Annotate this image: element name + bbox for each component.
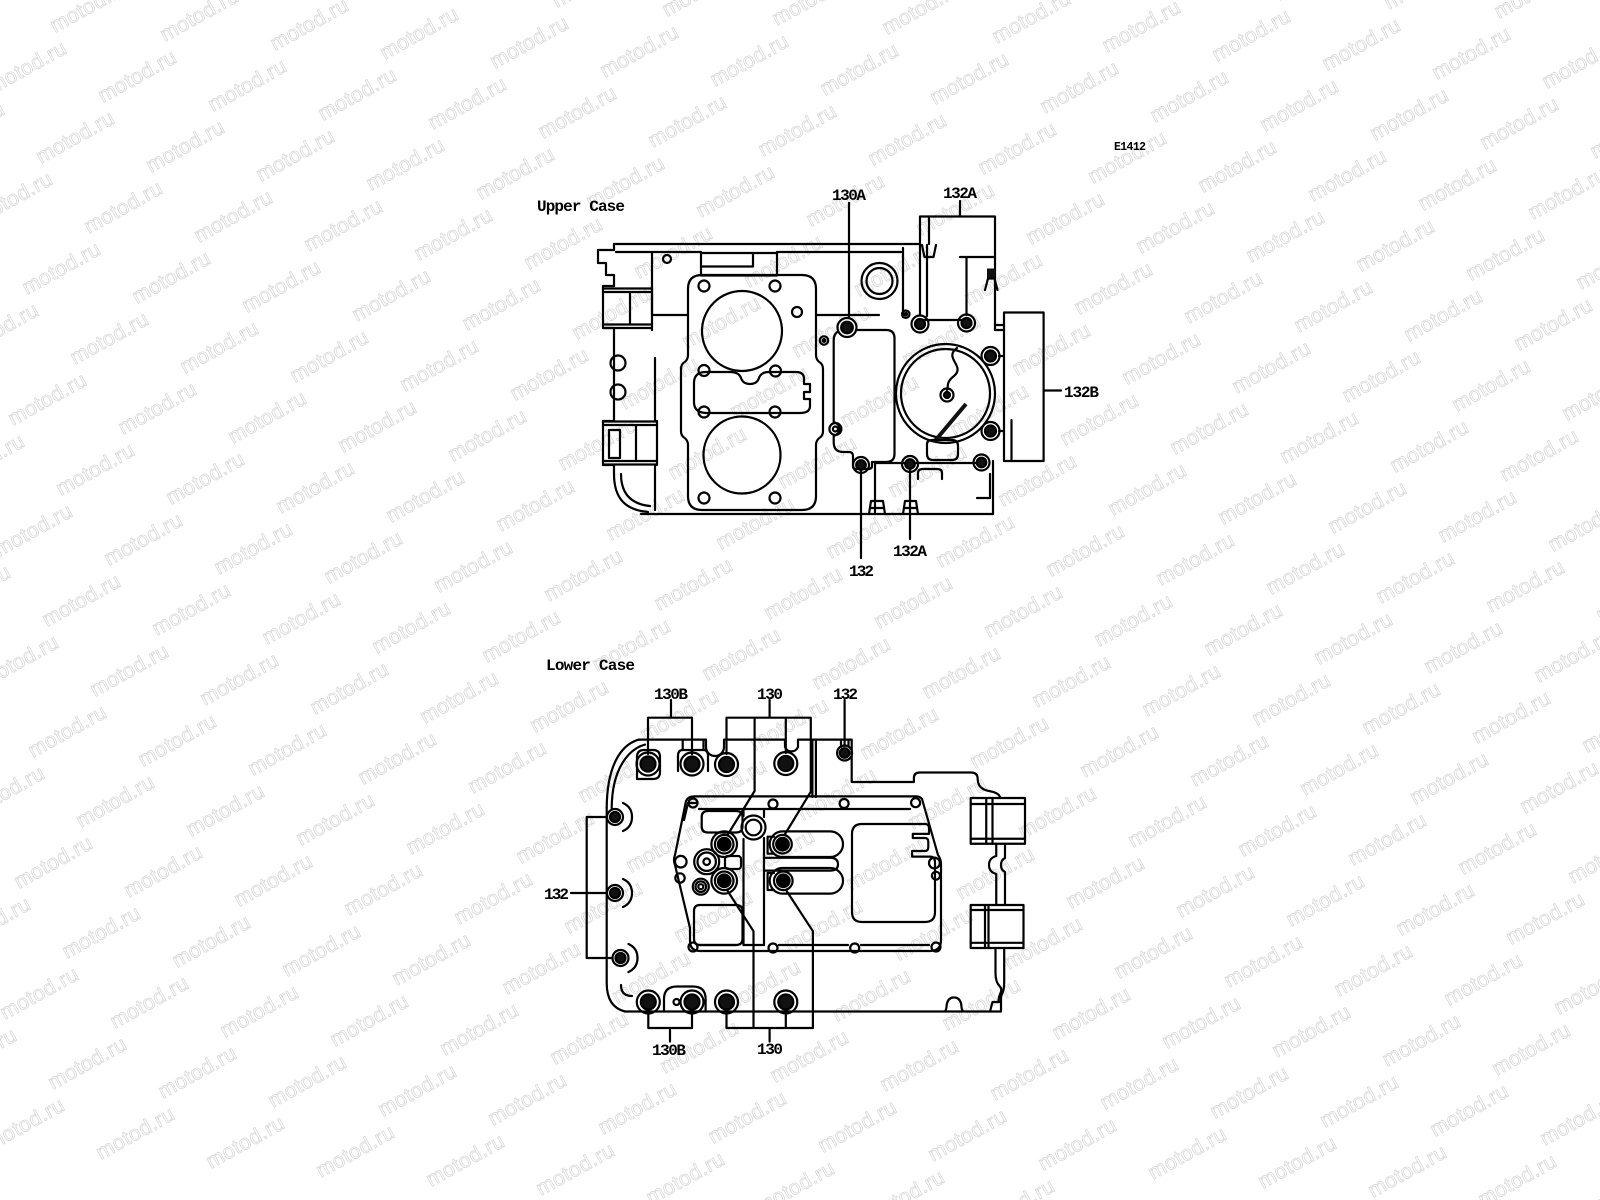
svg-text:motod.ru: motod.ru <box>1426 1080 1512 1142</box>
svg-text:motod.ru: motod.ru <box>306 658 392 720</box>
svg-text:motod.ru: motod.ru <box>994 450 1080 512</box>
svg-text:motod.ru: motod.ru <box>1352 215 1438 277</box>
svg-text:motod.ru: motod.ru <box>650 554 736 616</box>
svg-text:motod.ru: motod.ru <box>548 0 634 12</box>
svg-text:motod.ru: motod.ru <box>698 624 784 686</box>
svg-text:motod.ru: motod.ru <box>134 710 220 772</box>
svg-text:motod.ru: motod.ru <box>1228 337 1314 399</box>
svg-text:motod.ru: motod.ru <box>1220 931 1306 993</box>
svg-text:motod.ru: motod.ru <box>506 344 592 406</box>
svg-text:motod.ru: motod.ru <box>354 728 440 790</box>
svg-text:motod.ru: motod.ru <box>272 457 358 519</box>
svg-text:motod.ru: motod.ru <box>1488 1019 1574 1081</box>
svg-text:motod.ru: motod.ru <box>704 1087 790 1149</box>
svg-text:motod.ru: motod.ru <box>1454 818 1540 880</box>
svg-text:motod.ru: motod.ru <box>1366 84 1452 146</box>
svg-text:motod.ru: motod.ru <box>1028 651 1114 713</box>
svg-text:motod.ru: motod.ru <box>326 990 412 1052</box>
svg-text:motod.ru: motod.ru <box>1268 1001 1354 1063</box>
svg-text:motod.ru: motod.ru <box>1242 206 1328 268</box>
svg-text:motod.ru: motod.ru <box>1414 154 1500 216</box>
svg-text:motod.ru: motod.ru <box>924 1105 1010 1167</box>
svg-text:motod.ru: motod.ru <box>876 1035 962 1097</box>
svg-text:motod.ru: motod.ru <box>546 1008 632 1070</box>
svg-text:motod.ru: motod.ru <box>1550 958 1600 1020</box>
svg-text:motod.ru: motod.ru <box>388 929 474 991</box>
svg-text:motod.ru: motod.ru <box>1510 294 1596 356</box>
svg-text:motod.ru: motod.ru <box>1146 66 1232 128</box>
svg-text:motod.ru: motod.ru <box>760 563 846 625</box>
svg-text:motod.ru: motod.ru <box>1144 1123 1230 1185</box>
svg-text:motod.ru: motod.ru <box>1420 617 1506 679</box>
svg-text:132: 132 <box>833 686 858 704</box>
svg-text:motod.ru: motod.ru <box>58 902 144 964</box>
svg-text:motod.ru: motod.ru <box>1076 721 1162 783</box>
svg-text:motod.ru: motod.ru <box>1180 267 1266 329</box>
svg-text:motod.ru: motod.ru <box>278 920 364 982</box>
svg-text:motod.ru: motod.ru <box>472 143 558 205</box>
svg-text:Upper Case: Upper Case <box>537 198 625 216</box>
svg-text:motod.ru: motod.ru <box>862 1166 948 1200</box>
svg-text:motod.ru: motod.ru <box>382 466 468 528</box>
svg-text:motod.ru: motod.ru <box>168 911 254 973</box>
svg-text:motod.ru: motod.ru <box>204 55 290 117</box>
svg-text:motod.ru: motod.ru <box>0 299 43 361</box>
svg-text:motod.ru: motod.ru <box>864 109 950 171</box>
svg-text:motod.ru: motod.ru <box>1282 870 1368 932</box>
svg-text:motod.ru: motod.ru <box>1380 0 1466 14</box>
svg-text:motod.ru: motod.ru <box>1036 57 1122 119</box>
svg-text:motod.ru: motod.ru <box>430 536 516 598</box>
svg-text:motod.ru: motod.ru <box>752 1157 838 1200</box>
svg-text:motod.ru: motod.ru <box>540 545 626 607</box>
svg-text:motod.ru: motod.ru <box>292 789 378 851</box>
svg-text:motod.ru: motod.ru <box>1400 285 1486 347</box>
svg-text:motod.ru: motod.ru <box>368 597 454 659</box>
svg-text:motod.ru: motod.ru <box>0 500 77 562</box>
svg-text:motod.ru: motod.ru <box>1254 1132 1340 1194</box>
svg-text:motod.ru: motod.ru <box>1558 364 1600 426</box>
svg-text:motod.ru: motod.ru <box>320 527 406 589</box>
svg-text:motod.ru: motod.ru <box>416 667 502 729</box>
svg-text:motod.ru: motod.ru <box>836 371 922 433</box>
svg-text:motod.ru: motod.ru <box>436 999 522 1061</box>
svg-text:motod.ru: motod.ru <box>1214 468 1300 530</box>
svg-text:motod.ru: motod.ru <box>402 798 488 860</box>
svg-text:motod.ru: motod.ru <box>300 195 386 257</box>
svg-text:motod.ru: motod.ru <box>120 841 206 903</box>
svg-text:motod.ru: motod.ru <box>988 0 1074 48</box>
svg-text:motod.ru: motod.ru <box>980 581 1066 643</box>
svg-text:motod.ru: motod.ru <box>162 448 248 510</box>
svg-text:motod.ru: motod.ru <box>340 859 426 921</box>
svg-text:motod.ru: motod.ru <box>244 719 330 781</box>
svg-text:motod.ru: motod.ru <box>210 518 296 580</box>
svg-text:motod.ru: motod.ru <box>972 1175 1058 1200</box>
svg-text:motod.ru: motod.ru <box>148 579 234 641</box>
svg-text:motod.ru: motod.ru <box>18 238 104 300</box>
svg-text:motod.ru: motod.ru <box>24 701 110 763</box>
svg-text:motod.ru: motod.ru <box>768 0 854 30</box>
svg-text:motod.ru: motod.ru <box>10 832 96 894</box>
svg-text:motod.ru: motod.ru <box>856 703 942 765</box>
svg-text:motod.ru: motod.ru <box>224 387 310 449</box>
svg-text:motod.ru: motod.ru <box>1530 626 1600 688</box>
svg-text:motod.ru: motod.ru <box>560 877 646 939</box>
svg-text:motod.ru: motod.ru <box>692 161 778 223</box>
svg-text:motod.ru: motod.ru <box>616 353 702 415</box>
svg-text:motod.ru: motod.ru <box>484 1069 570 1131</box>
svg-text:motod.ru: motod.ru <box>1256 75 1342 137</box>
svg-text:motod.ru: motod.ru <box>4 369 90 431</box>
svg-text:motod.ru: motod.ru <box>312 1121 398 1183</box>
svg-text:motod.ru: motod.ru <box>190 186 276 248</box>
svg-text:motod.ru: motod.ru <box>252 125 338 187</box>
svg-text:motod.ru: motod.ru <box>0 963 83 1025</box>
svg-text:motod.ru: motod.ru <box>1338 346 1424 408</box>
svg-text:motod.ru: motod.ru <box>1474 1150 1560 1200</box>
svg-text:motod.ru: motod.ru <box>1008 319 1094 381</box>
svg-text:motod.ru: motod.ru <box>1468 687 1554 749</box>
svg-text:motod.ru: motod.ru <box>1586 102 1600 164</box>
svg-text:motod.ru: motod.ru <box>176 317 262 379</box>
svg-text:motod.ru: motod.ru <box>0 168 57 230</box>
svg-text:motod.ru: motod.ru <box>1234 800 1320 862</box>
svg-text:motod.ru: motod.ru <box>532 1139 618 1200</box>
svg-text:motod.ru: motod.ru <box>0 1024 21 1086</box>
svg-text:motod.ru: motod.ru <box>422 1130 508 1192</box>
svg-text:motod.ru: motod.ru <box>658 0 744 21</box>
svg-text:motod.ru: motod.ru <box>918 642 1004 704</box>
svg-text:motod.ru: motod.ru <box>238 256 324 318</box>
svg-text:motod.ru: motod.ru <box>314 64 400 126</box>
svg-text:motod.ru: motod.ru <box>1262 538 1348 600</box>
svg-text:motod.ru: motod.ru <box>1208 5 1294 67</box>
svg-text:motod.ru: motod.ru <box>450 868 536 930</box>
svg-text:motod.ru: motod.ru <box>202 1112 288 1174</box>
svg-text:motod.ru: motod.ru <box>46 0 132 37</box>
svg-text:motod.ru: motod.ru <box>0 0 23 28</box>
svg-text:motod.ru: motod.ru <box>1476 93 1562 155</box>
svg-text:motod.ru: motod.ru <box>898 310 984 372</box>
svg-text:motod.ru: motod.ru <box>706 30 792 92</box>
svg-text:motod.ru: motod.ru <box>80 177 166 239</box>
svg-text:132: 132 <box>544 886 569 904</box>
svg-text:motod.ru: motod.ru <box>794 764 880 826</box>
svg-text:motod.ru: motod.ru <box>38 570 124 632</box>
svg-text:motod.ru: motod.ru <box>1564 827 1600 889</box>
svg-text:motod.ru: motod.ru <box>1166 398 1252 460</box>
svg-text:motod.ru: motod.ru <box>94 46 180 108</box>
svg-text:motod.ru: motod.ru <box>642 1148 728 1200</box>
svg-text:motod.ru: motod.ru <box>1330 940 1416 1002</box>
svg-text:motod.ru: motod.ru <box>44 1033 130 1095</box>
svg-text:motod.ru: motod.ru <box>444 405 530 467</box>
svg-text:motod.ru: motod.ru <box>1316 1071 1402 1133</box>
svg-text:motod.ru: motod.ru <box>1318 14 1404 76</box>
svg-text:motod.ru: motod.ru <box>1524 163 1600 225</box>
svg-text:motod.ru: motod.ru <box>644 91 730 153</box>
svg-text:motod.ru: motod.ru <box>932 511 1018 573</box>
svg-text:motod.ru: motod.ru <box>1186 730 1272 792</box>
svg-text:motod.ru: motod.ru <box>1200 599 1286 661</box>
svg-text:motod.ru: motod.ru <box>92 1103 178 1165</box>
svg-text:motod.ru: motod.ru <box>1104 459 1190 521</box>
svg-text:motod.ru: motod.ru <box>1428 23 1514 85</box>
svg-text:motod.ru: motod.ru <box>1578 696 1600 758</box>
svg-text:motod.ru: motod.ru <box>1358 678 1444 740</box>
svg-text:motod.ru: motod.ru <box>156 0 242 46</box>
svg-text:motod.ru: motod.ru <box>72 771 158 833</box>
svg-text:motod.ru: motod.ru <box>52 439 138 501</box>
svg-text:motod.ru: motod.ru <box>828 965 914 1027</box>
svg-text:motod.ru: motod.ru <box>1118 328 1204 390</box>
svg-text:motod.ru: motod.ru <box>1592 565 1600 627</box>
svg-text:132: 132 <box>849 563 874 581</box>
svg-text:motod.ru: motod.ru <box>106 972 192 1034</box>
svg-text:motod.ru: motod.ru <box>1290 276 1376 338</box>
svg-text:motod.ru: motod.ru <box>1090 590 1176 652</box>
svg-text:motod.ru: motod.ru <box>1502 888 1588 950</box>
svg-text:motod.ru: motod.ru <box>1406 748 1492 810</box>
svg-text:motod.ru: motod.ru <box>1132 197 1218 259</box>
svg-text:motod.ru: motod.ru <box>410 204 496 266</box>
svg-text:motod.ru: motod.ru <box>0 561 15 623</box>
svg-text:motod.ru: motod.ru <box>154 1042 240 1104</box>
svg-text:130: 130 <box>757 1041 783 1059</box>
svg-text:motod.ru: motod.ru <box>1378 1010 1464 1072</box>
svg-text:motod.ru: motod.ru <box>1276 407 1362 469</box>
svg-text:motod.ru: motod.ru <box>974 118 1060 180</box>
svg-text:motod.ru: motod.ru <box>678 292 764 354</box>
svg-text:motod.ru: motod.ru <box>0 893 35 955</box>
svg-text:motod.ru: motod.ru <box>1448 355 1534 417</box>
svg-text:motod.ru: motod.ru <box>1392 879 1478 941</box>
svg-text:motod.ru: motod.ru <box>66 308 152 370</box>
svg-text:motod.ru: motod.ru <box>1048 983 1134 1045</box>
svg-text:motod.ru: motod.ru <box>334 396 420 458</box>
svg-text:130B: 130B <box>652 1042 686 1060</box>
svg-text:motod.ru: motod.ru <box>0 762 49 824</box>
svg-text:motod.ru: motod.ru <box>1084 127 1170 189</box>
svg-text:motod.ru: motod.ru <box>1538 32 1600 94</box>
svg-text:motod.ru: motod.ru <box>1482 556 1568 618</box>
svg-text:motod.ru: motod.ru <box>816 39 902 101</box>
svg-text:motod.ru: motod.ru <box>1544 495 1600 557</box>
svg-text:motod.ru: motod.ru <box>0 37 71 99</box>
svg-text:motod.ru: motod.ru <box>596 21 682 83</box>
svg-text:motod.ru: motod.ru <box>664 423 750 485</box>
svg-text:motod.ru: motod.ru <box>0 692 1 754</box>
svg-text:motod.ru: motod.ru <box>1462 224 1548 286</box>
svg-text:motod.ru: motod.ru <box>486 12 572 74</box>
svg-text:motod.ru: motod.ru <box>258 588 344 650</box>
svg-text:motod.ru: motod.ru <box>1042 520 1128 582</box>
svg-text:motod.ru: motod.ru <box>1496 425 1582 487</box>
svg-text:motod.ru: motod.ru <box>0 430 29 492</box>
svg-text:motod.ru: motod.ru <box>870 572 956 634</box>
svg-text:motod.ru: motod.ru <box>32 107 118 169</box>
svg-text:motod.ru: motod.ru <box>114 378 200 440</box>
svg-text:motod.ru: motod.ru <box>0 98 9 160</box>
svg-text:motod.ru: motod.ru <box>1158 992 1244 1054</box>
svg-text:motod.ru: motod.ru <box>1572 233 1600 295</box>
svg-text:motod.ru: motod.ru <box>1206 1062 1292 1124</box>
svg-text:motod.ru: motod.ru <box>348 265 434 327</box>
svg-text:motod.ru: motod.ru <box>1372 547 1458 609</box>
svg-text:motod.ru: motod.ru <box>1062 852 1148 914</box>
svg-text:motod.ru: motod.ru <box>878 0 964 39</box>
svg-text:motod.ru: motod.ru <box>966 712 1052 774</box>
svg-text:motod.ru: motod.ru <box>230 850 316 912</box>
svg-text:Lower Case: Lower Case <box>546 657 635 675</box>
svg-text:motod.ru: motod.ru <box>926 48 1012 110</box>
svg-text:motod.ru: motod.ru <box>1070 258 1156 320</box>
svg-text:motod.ru: motod.ru <box>594 1078 680 1140</box>
svg-text:motod.ru: motod.ru <box>1386 416 1472 478</box>
svg-text:motod.ru: motod.ru <box>1296 739 1382 801</box>
svg-text:motod.ru: motod.ru <box>1172 861 1258 923</box>
svg-text:motod.ru: motod.ru <box>890 904 976 966</box>
svg-text:motod.ru: motod.ru <box>266 0 352 55</box>
svg-text:motod.ru: motod.ru <box>554 414 640 476</box>
svg-text:motod.ru: motod.ru <box>1248 669 1334 731</box>
svg-text:motod.ru: motod.ru <box>1138 660 1224 722</box>
svg-text:motod.ru: motod.ru <box>182 780 268 842</box>
svg-text:motod.ru: motod.ru <box>1022 188 1108 250</box>
svg-text:motod.ru: motod.ru <box>1536 1089 1600 1151</box>
svg-text:motod.ru: motod.ru <box>1034 1114 1120 1176</box>
svg-text:motod.ru: motod.ru <box>128 247 214 309</box>
svg-text:132A: 132A <box>893 543 927 561</box>
svg-text:motod.ru: motod.ru <box>492 475 578 537</box>
svg-text:motod.ru: motod.ru <box>142 116 228 178</box>
svg-text:motod.ru: motod.ru <box>986 1044 1072 1106</box>
svg-text:motod.ru: motod.ru <box>464 737 550 799</box>
svg-text:motod.ru: motod.ru <box>264 1051 350 1113</box>
svg-text:motod.ru: motod.ru <box>814 1096 900 1158</box>
svg-text:motod.ru: motod.ru <box>1344 809 1430 871</box>
svg-text:motod.ru: motod.ru <box>842 834 928 896</box>
svg-text:motod.ru: motod.ru <box>424 73 510 135</box>
svg-text:motod.ru: motod.ru <box>216 981 302 1043</box>
svg-text:motod.ru: motod.ru <box>1014 782 1100 844</box>
svg-text:motod.ru: motod.ru <box>1194 136 1280 198</box>
svg-text:motod.ru: motod.ru <box>534 82 620 144</box>
svg-text:motod.ru: motod.ru <box>1364 1141 1450 1200</box>
svg-text:motod.ru: motod.ru <box>1098 0 1184 57</box>
svg-text:motod.ru: motod.ru <box>458 274 544 336</box>
svg-text:motod.ru: motod.ru <box>938 974 1024 1036</box>
svg-text:motod.ru: motod.ru <box>376 3 462 65</box>
svg-text:motod.ru: motod.ru <box>1152 529 1238 591</box>
svg-text:motod.ru: motod.ru <box>1096 1053 1182 1115</box>
svg-text:motod.ru: motod.ru <box>374 1060 460 1122</box>
svg-text:motod.ru: motod.ru <box>1490 0 1576 23</box>
svg-text:E1412: E1412 <box>1114 141 1146 154</box>
svg-text:motod.ru: motod.ru <box>396 335 482 397</box>
svg-text:motod.ru: motod.ru <box>1110 922 1196 984</box>
svg-text:motod.ru: motod.ru <box>712 493 798 555</box>
svg-text:motod.ru: motod.ru <box>754 100 840 162</box>
svg-text:motod.ru: motod.ru <box>362 134 448 196</box>
svg-text:motod.ru: motod.ru <box>1324 477 1410 539</box>
svg-text:motod.ru: motod.ru <box>526 676 612 738</box>
svg-text:motod.ru: motod.ru <box>498 938 584 1000</box>
svg-text:motod.ru: motod.ru <box>1440 949 1526 1011</box>
svg-text:130: 130 <box>757 686 783 704</box>
svg-text:motod.ru: motod.ru <box>1310 608 1396 670</box>
svg-text:130B: 130B <box>654 686 688 704</box>
svg-text:motod.ru: motod.ru <box>86 640 172 702</box>
svg-text:motod.ru: motod.ru <box>0 1094 69 1156</box>
svg-text:motod.ru: motod.ru <box>1516 757 1600 819</box>
svg-text:motod.ru: motod.ru <box>100 509 186 571</box>
svg-text:motod.ru: motod.ru <box>1124 791 1210 853</box>
svg-text:motod.ru: motod.ru <box>1584 1159 1600 1200</box>
svg-text:132B: 132B <box>1064 384 1099 402</box>
svg-text:motod.ru: motod.ru <box>780 895 866 957</box>
svg-text:motod.ru: motod.ru <box>0 631 63 693</box>
svg-text:motod.ru: motod.ru <box>520 213 606 275</box>
svg-text:motod.ru: motod.ru <box>1304 145 1390 207</box>
svg-text:motod.ru: motod.ru <box>286 326 372 388</box>
svg-text:motod.ru: motod.ru <box>1434 486 1520 548</box>
svg-text:motod.ru: motod.ru <box>196 649 282 711</box>
